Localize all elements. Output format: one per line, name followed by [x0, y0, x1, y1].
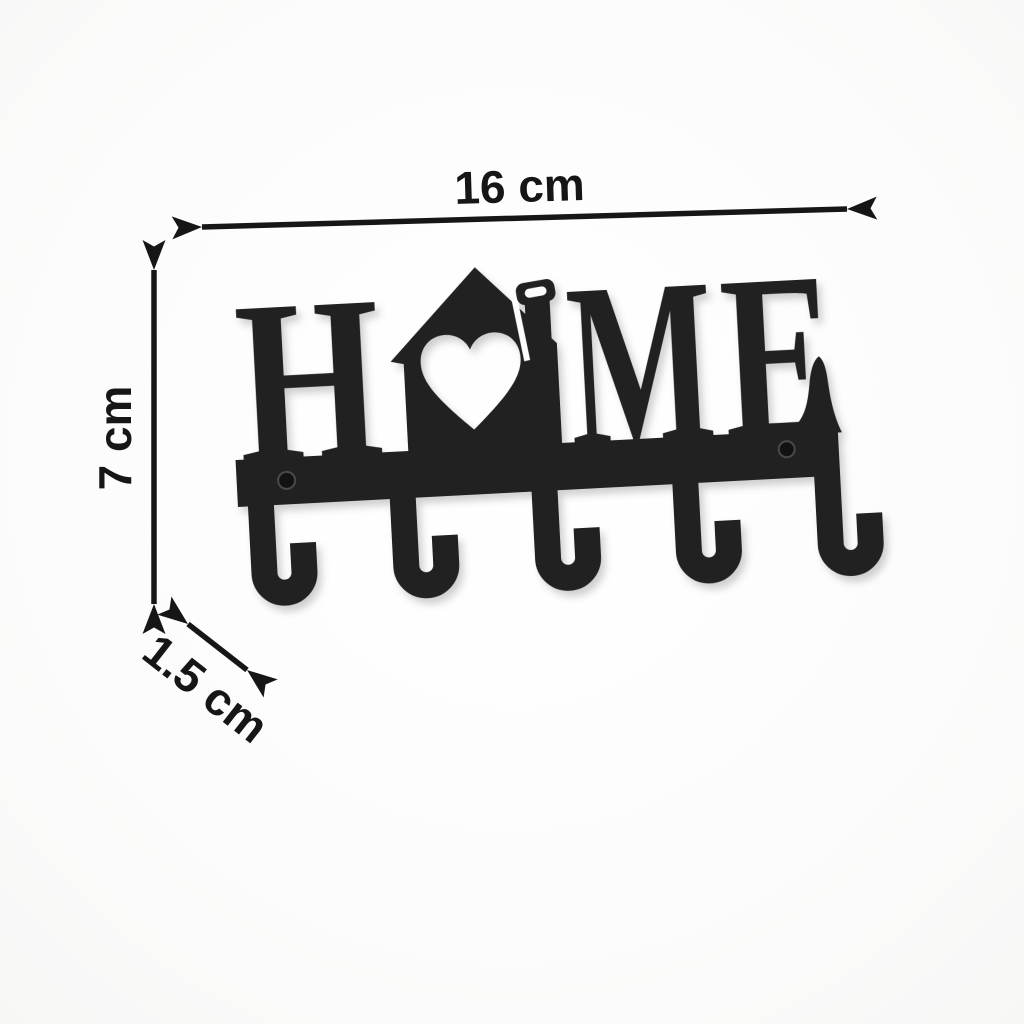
dimension-height-label: 7 cm [89, 386, 141, 491]
letter-h: H [230, 247, 388, 515]
screw-hole-right [778, 441, 795, 458]
chimney-ring-icon [515, 278, 557, 306]
hook-5 [827, 465, 872, 564]
dimension-depth-label: 1.5 cm [133, 624, 278, 753]
screw-hole-left [278, 471, 296, 489]
product-dimension-diagram: 16 cm 7 cm 1.5 cm H [0, 0, 1024, 1024]
home-key-rack: H M E [225, 222, 872, 595]
letter-m: M [561, 230, 720, 498]
hook-2 [402, 487, 447, 586]
dimension-width-label: 16 cm [453, 158, 585, 214]
